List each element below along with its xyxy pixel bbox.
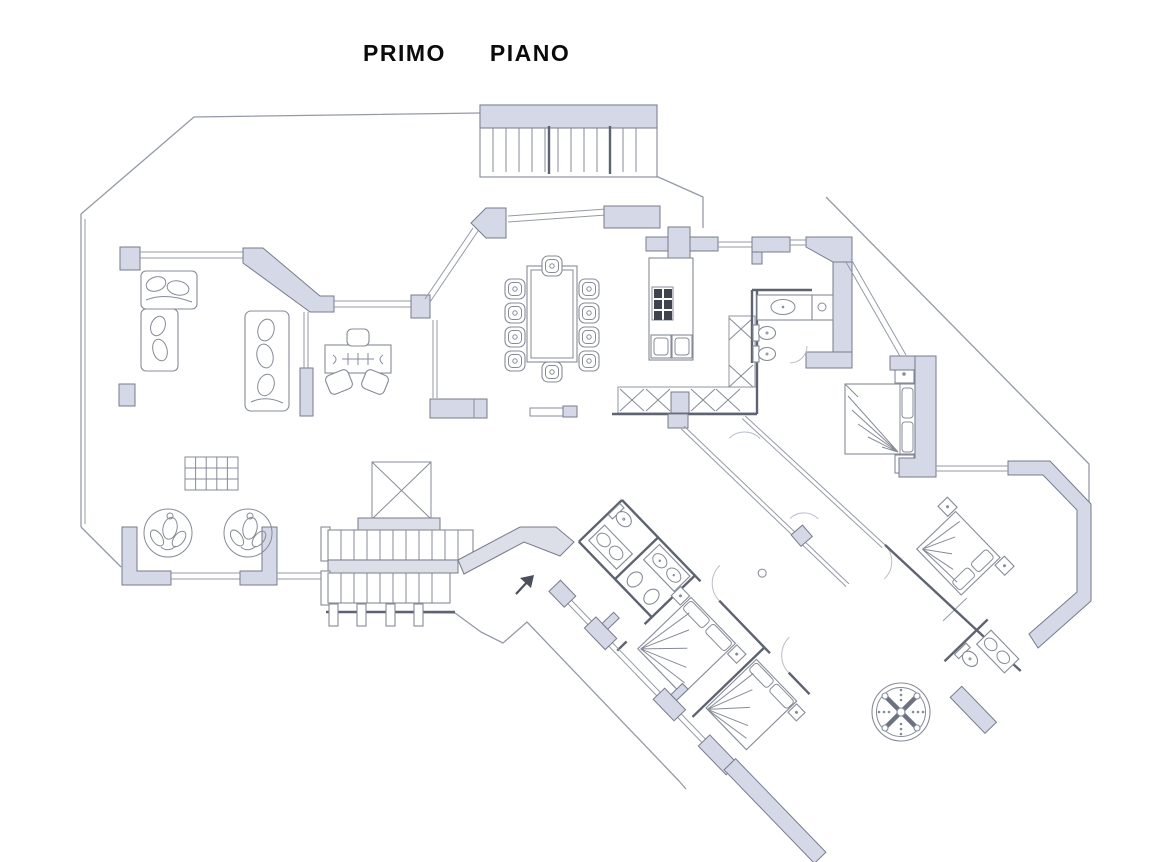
bidet-icon [753,346,776,362]
bedroom-1 [845,259,936,477]
living-room-furniture [141,271,391,557]
desk-chair [347,329,369,346]
hall-bathroom [752,237,852,368]
floor-plan-drawing [0,0,1167,862]
toilet-icon [753,325,776,341]
floor-plan-page: PRIMOPIANO [0,0,1167,862]
dining-table [527,266,577,362]
dining-area [430,256,599,418]
sofa-group-center [245,311,289,411]
bedroom-2 [868,491,1014,637]
terrace-boundary [81,113,1089,789]
sideboard [430,399,487,418]
wall-pier [120,247,140,270]
internal-staircase [321,462,574,626]
elevator-shaft [372,462,431,519]
vanity [757,295,812,320]
external-staircase [480,105,657,177]
entrance-arrow-icon [516,575,534,594]
balustrade [326,604,455,626]
sofa-group-left [141,271,197,371]
double-bed [845,384,915,454]
study-desk [324,329,391,396]
round-armchair [144,509,192,557]
kitchen-sinks [651,335,692,358]
grid-table [185,457,238,490]
jacuzzi-icon [872,683,930,741]
entry-passage-wall [458,527,574,574]
